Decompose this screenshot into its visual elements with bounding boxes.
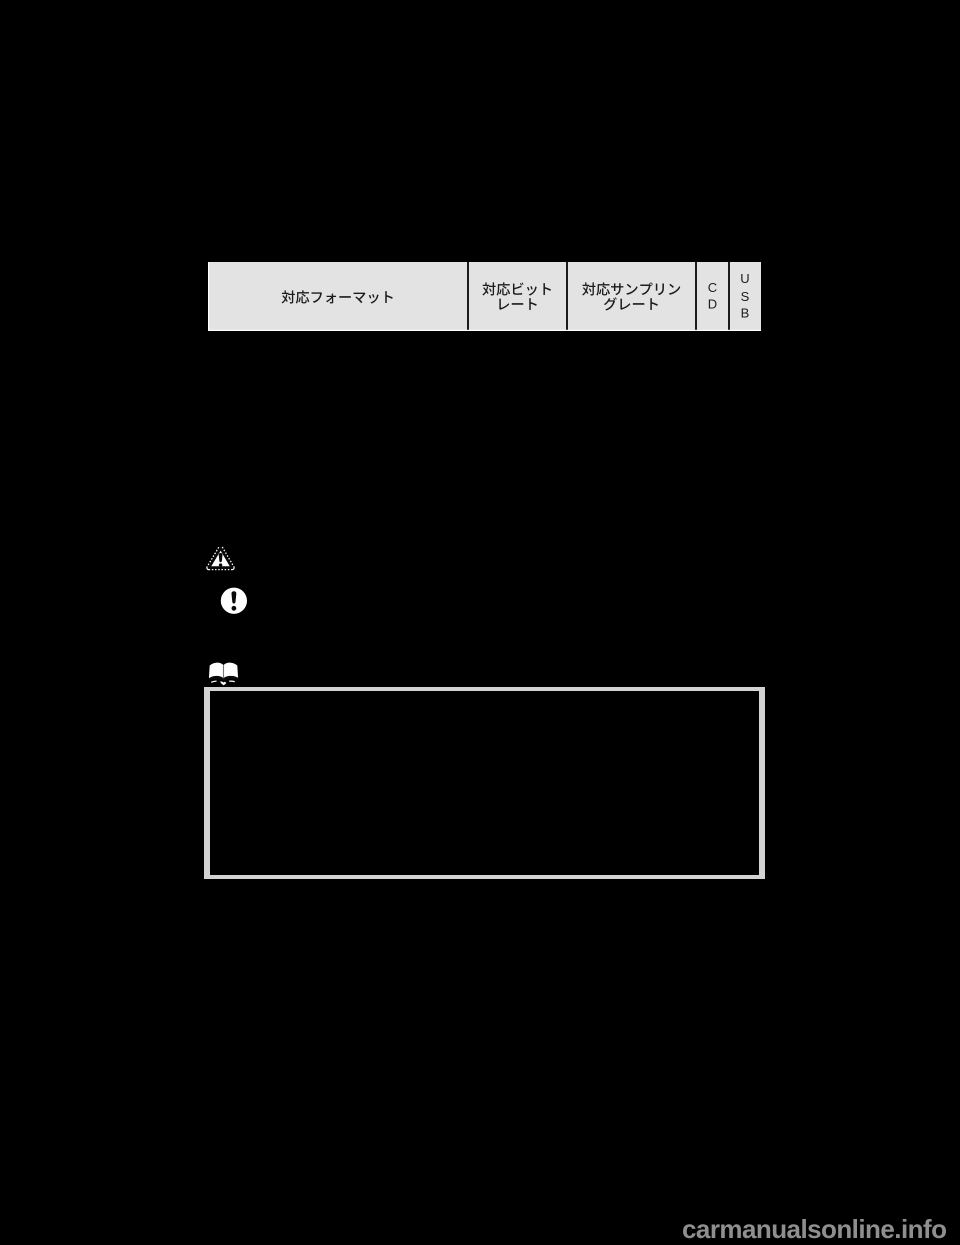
svg-text:S: S xyxy=(741,289,750,304)
svg-text:B: B xyxy=(741,306,750,321)
svg-text:C: C xyxy=(708,280,717,295)
svg-text:U: U xyxy=(740,271,749,286)
svg-text:D: D xyxy=(708,296,717,311)
